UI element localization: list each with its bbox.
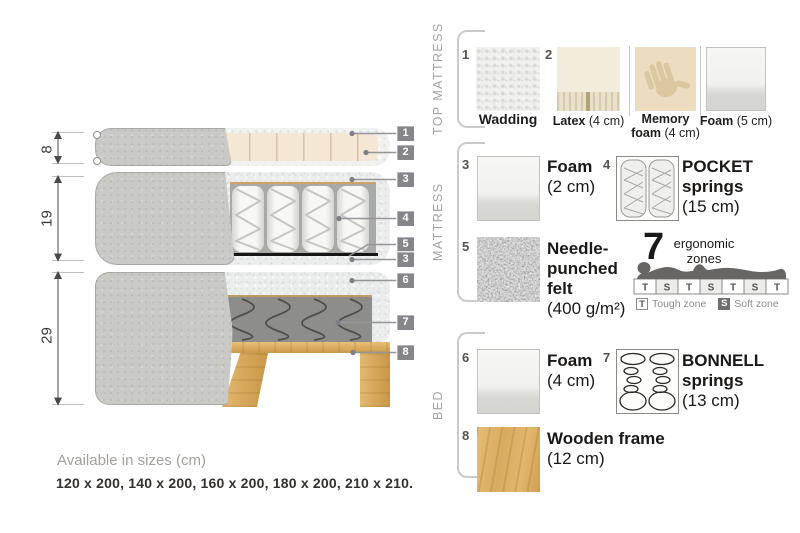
item-felt-size: (400 g/m²) — [547, 299, 639, 319]
bed-cover — [95, 272, 233, 405]
mattress-cutaway — [222, 172, 390, 265]
wooden-leg-right — [360, 353, 390, 407]
latex-layer — [222, 133, 378, 161]
zone-letter: S — [752, 283, 759, 294]
item-foam4-name: Foam — [547, 351, 592, 370]
item-title-bonnell: BONNELL springs (13 cm) — [682, 351, 772, 411]
dimension-bed-height: 29 — [39, 321, 56, 351]
caption-wadding-name: Wadding — [479, 111, 538, 127]
bed-foam-top — [222, 272, 390, 296]
item-wood-name: Wooden frame — [547, 429, 665, 448]
item-title-needle-felt: Needle-punched felt (400 g/m²) — [547, 239, 639, 319]
caption-memory-foam-size: (4 cm) — [664, 126, 699, 140]
section-label-mattress: MATTRESS — [428, 142, 448, 302]
spring-top-tape — [230, 182, 376, 184]
item-pocket-name: POCKET springs — [682, 157, 753, 196]
item-wood-size: (12 cm) — [547, 449, 687, 469]
zone-letter: T — [686, 283, 692, 294]
tough-zone-icon: T — [636, 298, 648, 310]
item-number-1: 1 — [462, 47, 469, 62]
spring-coil-lines — [230, 184, 376, 254]
item-number-8: 8 — [462, 428, 469, 443]
caption-latex-size: (4 cm) — [589, 114, 624, 128]
zone-letter: T — [642, 283, 648, 294]
zone-letter: T — [730, 283, 736, 294]
available-sizes-list: 120 x 200, 140 x 200, 160 x 200, 180 x 2… — [56, 475, 413, 491]
item-title-wooden-frame: Wooden frame (12 cm) — [547, 429, 687, 469]
dimension-top-mattress-height: 8 — [39, 135, 56, 165]
hand-imprint-icon — [635, 47, 696, 111]
foam5-image — [706, 47, 766, 111]
bonnell-springs-image — [616, 349, 679, 414]
section-label-bed: BED — [428, 332, 448, 478]
bonnell-spring-area — [226, 295, 372, 342]
foam4-image — [477, 349, 540, 414]
dim-tick — [52, 404, 84, 405]
soft-zone-label: Soft zone — [734, 298, 778, 310]
callout-2: 2 — [397, 145, 414, 160]
callout-1: 1 — [397, 126, 414, 141]
zone-letter: S — [708, 283, 715, 294]
item-number-6: 6 — [462, 350, 469, 365]
section-label-top-mattress: TOP MATTRESS — [428, 30, 448, 128]
dim-tick — [52, 272, 84, 273]
needle-felt-line — [230, 253, 378, 256]
dimension-mattress-height: 19 — [39, 204, 56, 234]
item-foam2-size: (2 cm) — [547, 177, 617, 197]
zone-letter: S — [664, 283, 671, 294]
ergonomic-label-line1: ergonomic — [668, 236, 740, 251]
top-mattress-button — [93, 157, 101, 165]
item-pocket-size: (15 cm) — [682, 197, 767, 217]
zone-letter: T — [774, 283, 780, 294]
bonnell-spring-lines — [226, 295, 372, 342]
needle-felt-image — [477, 237, 540, 302]
ergonomic-zones-graphic: T S T S T S T — [633, 255, 789, 295]
callout-6: 6 — [397, 273, 414, 288]
item-number-3: 3 — [462, 157, 469, 172]
dim-tick — [52, 176, 84, 177]
callout-4: 4 — [397, 211, 414, 226]
pocket-springs-image — [616, 156, 679, 221]
dim-tick — [52, 260, 84, 261]
latex-notch — [586, 92, 590, 111]
item-number-4: 4 — [603, 157, 610, 172]
mattress-cover — [95, 172, 235, 265]
caption-divider — [629, 46, 630, 116]
item-number-2: 2 — [545, 47, 552, 62]
pocket-spring-area — [230, 184, 376, 254]
felt-texture — [477, 237, 540, 302]
bed-foam-side — [372, 290, 390, 342]
soft-zone-icon: S — [718, 298, 730, 310]
callout-3: 3 — [397, 172, 414, 187]
caption-latex: Latex (4 cm) — [546, 114, 631, 128]
item-title-pocket-springs: POCKET springs (15 cm) — [682, 157, 767, 217]
infographic-bed-construction: 8 19 29 — [0, 0, 800, 533]
memory-foam-image — [635, 47, 696, 111]
caption-divider — [700, 46, 701, 116]
item-foam2-name: Foam — [547, 157, 592, 176]
item-felt-name: Needle-punched felt — [547, 239, 618, 298]
foam2-image — [477, 156, 540, 221]
item-number-5: 5 — [462, 239, 469, 254]
available-sizes-title: Available in sizes (cm) — [57, 452, 206, 469]
zone-legend: T Tough zone S Soft zone — [636, 298, 779, 310]
wooden-frame-slat — [226, 342, 390, 353]
callout-3b: 3 — [397, 252, 414, 267]
dim-tick — [52, 132, 84, 133]
dim-tick — [52, 163, 84, 164]
callout-7: 7 — [397, 315, 414, 330]
latex-image — [557, 47, 620, 111]
caption-foam5: Foam (5 cm) — [692, 114, 780, 128]
tough-zone-label: Tough zone — [652, 298, 706, 310]
item-bonnell-size: (13 cm) — [682, 391, 772, 411]
caption-latex-name: Latex — [553, 114, 586, 128]
wadding-image — [476, 47, 540, 111]
caption-foam5-name: Foam — [700, 114, 733, 128]
pocket-springs-icon — [617, 157, 678, 220]
top-mattress-cover — [95, 128, 232, 166]
item-bonnell-name: BONNELL springs — [682, 351, 764, 390]
top-mattress-cutaway — [222, 128, 390, 166]
bonnell-springs-icon — [617, 350, 678, 413]
item-foam4-size: (4 cm) — [547, 371, 617, 391]
caption-foam5-size: (5 cm) — [737, 114, 772, 128]
caption-wadding: Wadding — [462, 112, 554, 126]
wooden-frame-image — [477, 427, 540, 492]
top-mattress-button — [93, 131, 101, 139]
callout-5: 5 — [397, 237, 414, 252]
item-number-7: 7 — [603, 350, 610, 365]
callout-8: 8 — [397, 345, 414, 360]
